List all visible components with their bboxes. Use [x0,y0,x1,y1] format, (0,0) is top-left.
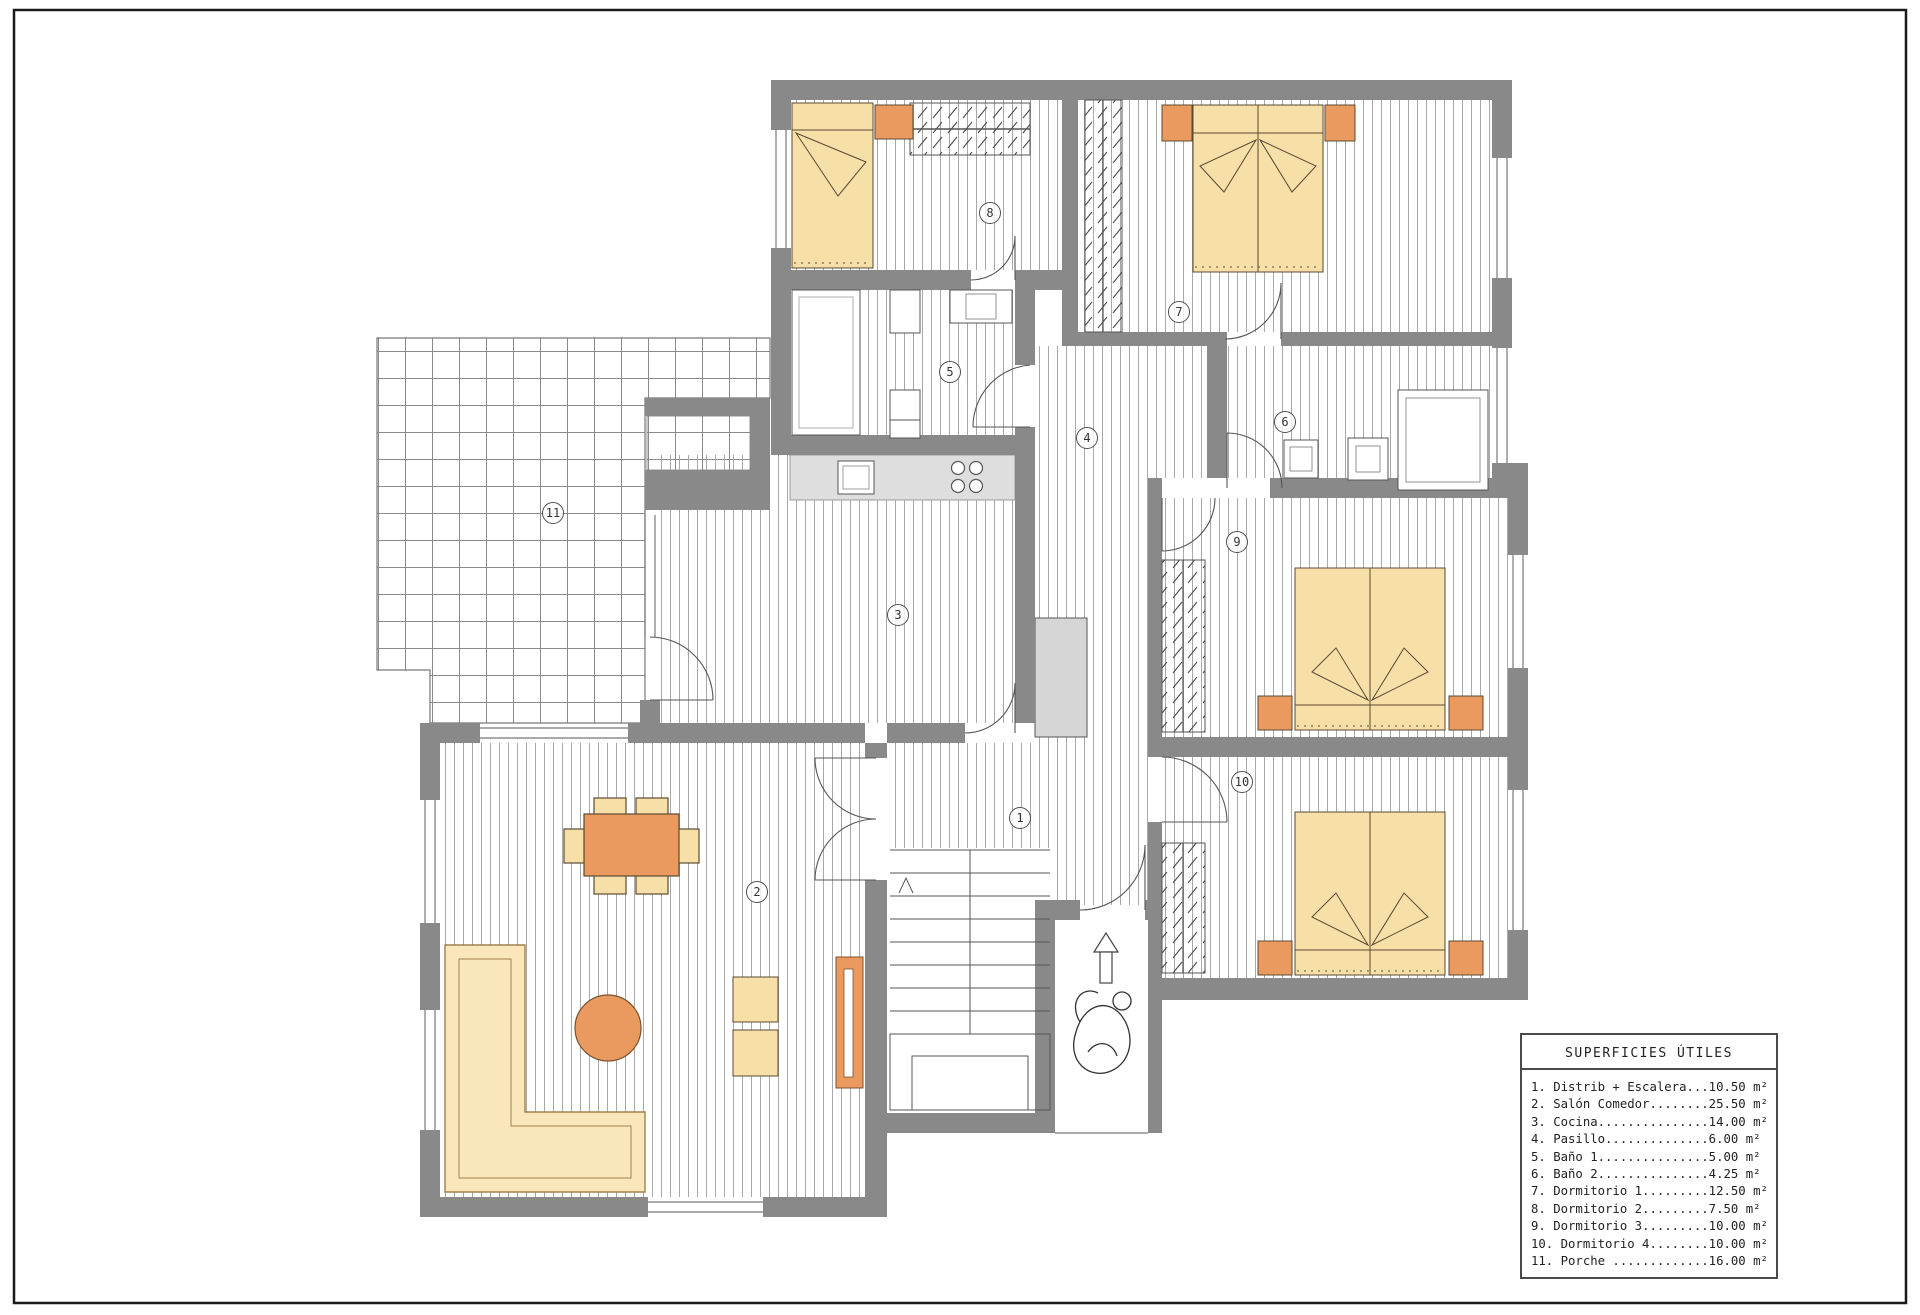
washbasin [1284,440,1318,478]
chair [677,829,699,863]
legend-item: 4. Pasillo..............6.00 m² [1531,1131,1772,1148]
kitchen-counter [790,455,1015,500]
nightstand [1258,941,1292,975]
chair [594,874,626,894]
nightstand [1449,696,1483,730]
room-label-4: 4 [1076,427,1098,449]
toilet [1348,438,1388,480]
sideboard [836,957,863,1088]
legend-item: 6. Baño 2...............4.25 m² [1531,1166,1772,1183]
stairwell-floor [887,848,1050,1113]
room-label-6: 6 [1274,411,1296,433]
nightstand [1162,105,1192,141]
toilet [890,290,920,333]
room-label-1: 1 [1009,807,1031,829]
bidet [890,390,920,438]
room-label-2: 2 [746,881,768,903]
legend-item: 1. Distrib + Escalera...10.50 m² [1531,1079,1772,1096]
legend-item: 7. Dormitorio 1.........12.50 m² [1531,1183,1772,1200]
legend-item: 2. Salón Comedor........25.50 m² [1531,1096,1772,1113]
room-label-5: 5 [939,361,961,383]
room-label-11: 11 [542,502,564,524]
stair-void-shaft [1035,618,1087,737]
legend-item: 5. Baño 1...............5.00 m² [1531,1149,1772,1166]
room-label-3: 3 [887,604,909,626]
room-label-9: 9 [1226,531,1248,553]
legend-items: 1. Distrib + Escalera...10.50 m²2. Salón… [1522,1070,1776,1270]
nightstand [1258,696,1292,730]
legend-title: SUPERFICIES ÚTILES [1522,1035,1776,1070]
legend-item: 3. Cocina...............14.00 m² [1531,1114,1772,1131]
chair [564,829,586,863]
shower-tray [1398,390,1488,490]
room-label-8: 8 [979,202,1001,224]
nightstand [1325,105,1355,141]
chair [636,874,668,894]
bathtub [792,290,860,435]
nightstand [1449,941,1483,975]
washbasin [950,290,1012,323]
legend-item: 11. Porche .............16.00 m² [1531,1253,1772,1270]
floor-plan-page: 1234567891011 SUPERFICIES ÚTILES 1. Dist… [0,0,1920,1315]
legend-item: 9. Dormitorio 3.........10.00 m² [1531,1218,1772,1235]
legend-item: 8. Dormitorio 2.........7.50 m² [1531,1201,1772,1218]
legend-box: SUPERFICIES ÚTILES 1. Distrib + Escalera… [1520,1033,1778,1279]
nightstand [875,105,913,139]
legend-item: 10. Dormitorio 4........10.00 m² [1531,1236,1772,1253]
coffee-table [575,995,641,1061]
room-label-10: 10 [1231,771,1253,793]
room-label-7: 7 [1168,301,1190,323]
dining-table [584,814,679,876]
